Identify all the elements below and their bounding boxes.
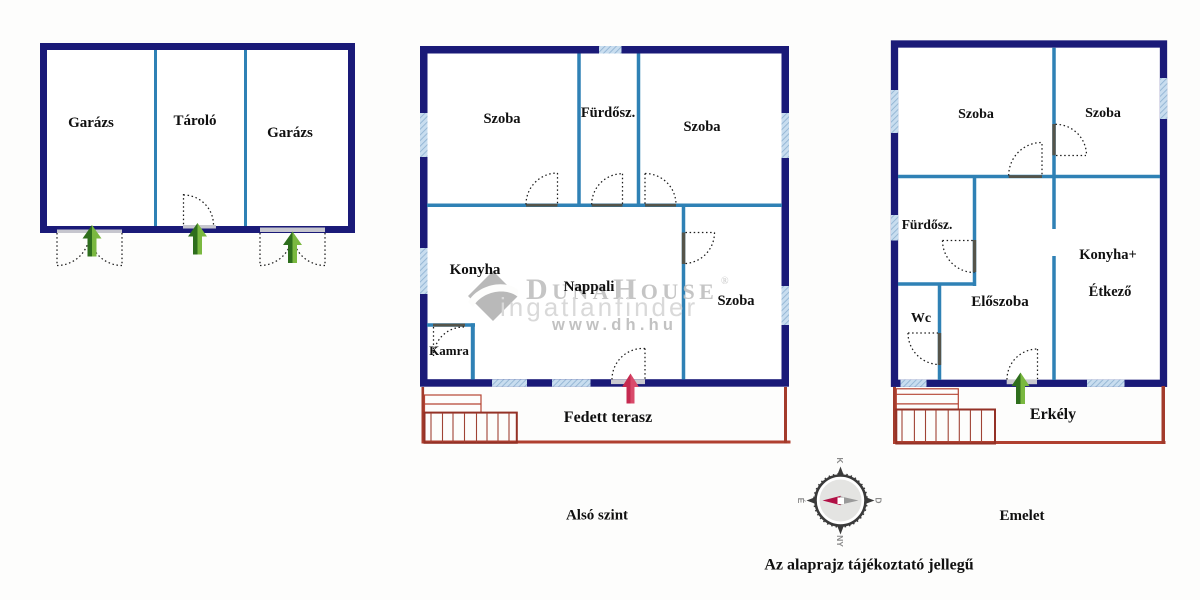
svg-text:Szoba: Szoba: [1085, 106, 1121, 121]
svg-text:Szoba: Szoba: [683, 119, 721, 135]
svg-text:Szoba: Szoba: [958, 107, 994, 122]
svg-text:Fürdősz.: Fürdősz.: [902, 217, 953, 232]
svg-text:Étkező: Étkező: [1089, 283, 1132, 300]
svg-text:Szoba: Szoba: [717, 293, 755, 309]
svg-text:Erkély: Erkély: [1030, 406, 1076, 423]
svg-text:K: K: [835, 457, 845, 464]
svg-text:Konyha+: Konyha+: [1079, 247, 1136, 263]
svg-text:Szoba: Szoba: [483, 111, 521, 127]
svg-text:D: D: [874, 497, 884, 503]
svg-text:Kamra: Kamra: [429, 343, 469, 358]
svg-text:www.dh.hu: www.dh.hu: [551, 316, 677, 334]
svg-text:Konyha: Konyha: [450, 262, 501, 278]
svg-text:Tároló: Tároló: [173, 113, 216, 129]
svg-text:É: É: [796, 498, 806, 504]
svg-text:®: ®: [721, 276, 729, 287]
svg-text:NY: NY: [835, 535, 845, 547]
svg-text:Az alaprajz tájékoztató jelleg: Az alaprajz tájékoztató jellegű: [764, 557, 973, 574]
svg-text:Garázs: Garázs: [68, 115, 114, 131]
svg-text:Garázs: Garázs: [267, 125, 313, 141]
svg-text:Fedett terasz: Fedett terasz: [564, 409, 652, 426]
svg-text:Fürdősz.: Fürdősz.: [581, 105, 635, 121]
svg-text:Emelet: Emelet: [1000, 508, 1045, 524]
svg-text:Előszoba: Előszoba: [971, 294, 1029, 310]
svg-text:Wc: Wc: [911, 311, 931, 326]
svg-text:Alsó szint: Alsó szint: [566, 508, 628, 524]
svg-text:Nappali: Nappali: [564, 279, 615, 295]
